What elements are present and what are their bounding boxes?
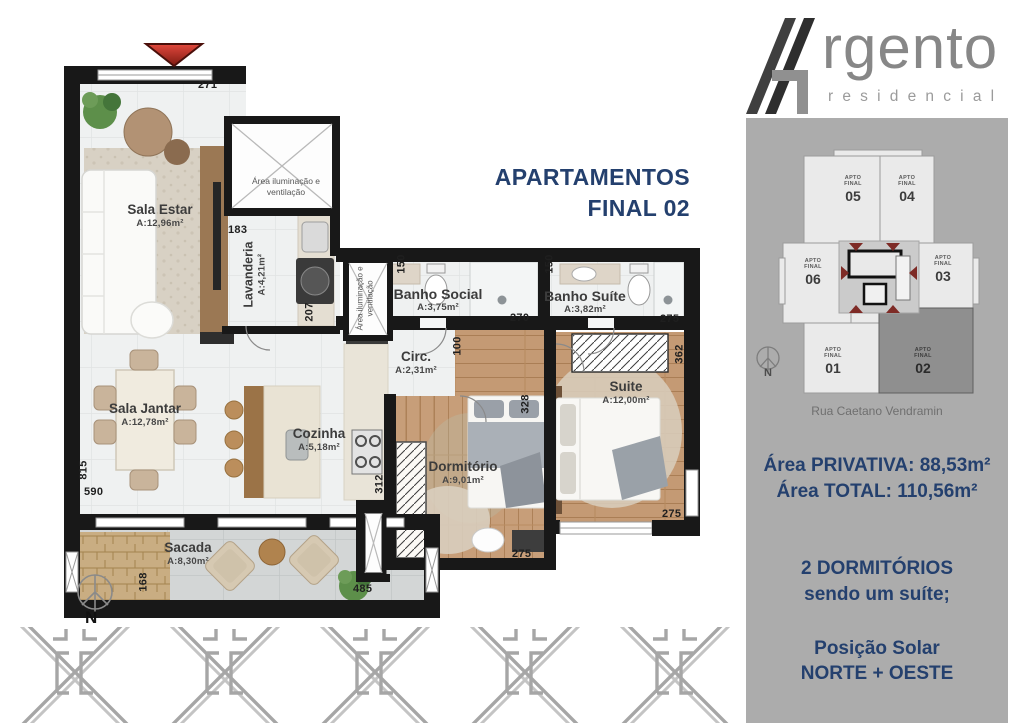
room-name: Dormitório xyxy=(429,459,498,474)
dim-183: 183 xyxy=(228,224,247,236)
street-label: Rua Caetano Vendramin xyxy=(746,404,1008,418)
room-label-lavanderia: Lavanderia A:4,21m² xyxy=(242,225,267,325)
dim-362: 362 xyxy=(674,344,686,363)
shaft-label: Área iluminação e ventilação xyxy=(246,176,326,198)
keyplan-unit-02: APTO FINAL 02 xyxy=(900,348,946,375)
dim-275b: 275 xyxy=(512,548,531,560)
dormitorios-line2: sendo um suíte; xyxy=(746,584,1008,606)
dormitorios-line1: 2 DORMITÓRIOS xyxy=(746,558,1008,580)
dim-328: 328 xyxy=(520,394,532,413)
keyplan-unit-05: APTO FINAL 05 xyxy=(830,176,876,203)
room-area: A:12,96m² xyxy=(120,219,200,229)
room-label-sala-jantar: Sala Jantar A:12,78m² xyxy=(105,402,185,428)
room-label-circ: Circ. A:2,31m² xyxy=(380,350,452,376)
room-area: A:2,31m² xyxy=(380,366,452,376)
dim-815: 815 xyxy=(78,460,90,479)
dim-312: 312 xyxy=(374,474,386,493)
room-area: A:12,00m² xyxy=(586,396,666,406)
keyplan-unit-06: APTO FINAL 06 xyxy=(790,259,836,286)
flyer-page: Sala Estar A:12,96m² Lavanderia A:4,21m²… xyxy=(0,0,1024,723)
keyplan-north-label: N xyxy=(756,367,780,379)
dim-150b: 150 xyxy=(544,254,556,273)
dim-275c: 275 xyxy=(662,508,681,520)
dim-270: 270 xyxy=(510,312,529,324)
north-label: N xyxy=(85,608,97,628)
title-line2: FINAL 02 xyxy=(495,193,690,224)
keyplan-unit-01: APTO FINAL 01 xyxy=(810,348,856,375)
room-label-dormitorio: Dormitório A:9,01m² xyxy=(413,460,513,486)
room-area: A:3,75m² xyxy=(383,303,493,313)
area-total: Área TOTAL: 110,56m² xyxy=(746,481,1008,503)
keyplan-unit-03: APTO FINAL 03 xyxy=(920,256,966,283)
dim-275a: 275 xyxy=(660,313,679,325)
room-name: Lavanderia xyxy=(241,242,255,308)
dim-168: 168 xyxy=(138,572,150,591)
room-label-cozinha: Cozinha A:5,18m² xyxy=(283,427,355,453)
room-name: Circ. xyxy=(401,349,431,364)
area-privativa: Área PRIVATIVA: 88,53m² xyxy=(746,455,1008,477)
room-area: A:3,82m² xyxy=(535,305,635,315)
dim-271: 271 xyxy=(198,79,217,91)
room-label-sacada: Sacada A:8,30m² xyxy=(148,541,228,567)
room-area: A:9,01m² xyxy=(413,476,513,486)
brand-name: rgento xyxy=(822,18,998,78)
shaft-label: Área iluminação e ventilação xyxy=(356,260,377,336)
room-area: A:5,18m² xyxy=(283,443,355,453)
brand-logo: rgento residencial xyxy=(740,12,1024,116)
key-plan-core xyxy=(839,241,919,313)
room-label-sala-estar: Sala Estar A:12,96m² xyxy=(120,203,200,229)
room-name: Sala Jantar xyxy=(109,401,181,416)
logo-a-icon xyxy=(744,18,822,114)
dim-150a: 150 xyxy=(396,254,408,273)
room-label-banho-social: Banho Social A:3,75m² xyxy=(383,287,493,314)
dim-590: 590 xyxy=(84,486,103,498)
key-plan xyxy=(746,148,1010,400)
room-name: Banho Suíte xyxy=(544,288,626,304)
room-area: A:12,78m² xyxy=(105,418,185,428)
room-name: Sala Estar xyxy=(127,202,192,217)
room-area: A:4,21m² xyxy=(257,225,267,325)
entry-arrow-icon xyxy=(146,44,202,66)
room-label-banho-suite: Banho Suíte A:3,82m² xyxy=(535,289,635,316)
room-area: A:8,30m² xyxy=(148,557,228,567)
posicao-solar-line2: NORTE + OESTE xyxy=(746,663,1008,685)
keyplan-unit-04: APTO FINAL 04 xyxy=(884,176,930,203)
title-line1: APARTAMENTOS xyxy=(495,162,690,193)
dim-100: 100 xyxy=(452,336,464,355)
room-name: Suite xyxy=(609,379,642,394)
room-name: Cozinha xyxy=(293,426,346,441)
room-label-suite: Suite A:12,00m² xyxy=(586,380,666,406)
dim-485: 485 xyxy=(353,583,372,595)
room-name: Sacada xyxy=(164,540,211,555)
page-title: APARTAMENTOS FINAL 02 xyxy=(495,162,690,224)
room-name: Banho Social xyxy=(394,286,483,302)
dim-207: 207 xyxy=(304,302,316,321)
posicao-solar-line1: Posição Solar xyxy=(746,638,1008,660)
brand-subtitle: residencial xyxy=(828,88,1003,106)
